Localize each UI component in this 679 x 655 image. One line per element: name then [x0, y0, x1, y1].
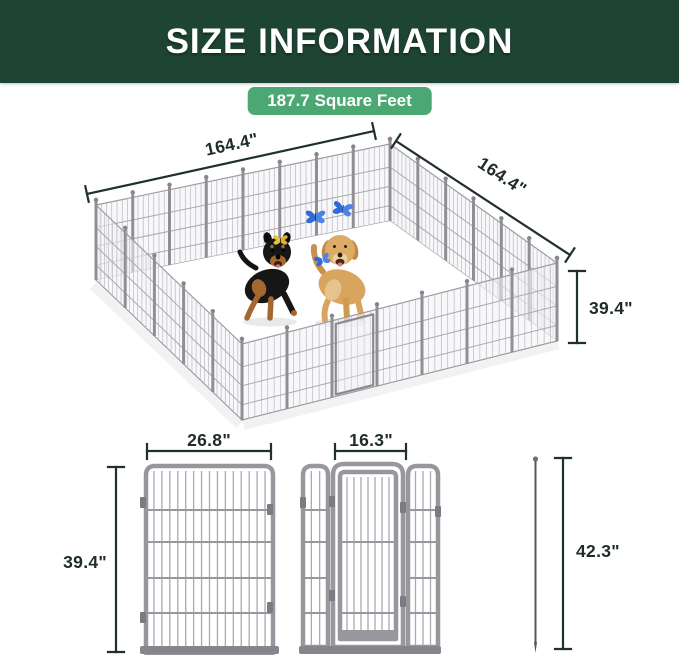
panel-height-label: 39.4" — [63, 552, 107, 572]
stake-ball-top — [533, 456, 538, 461]
panel-connector-tab — [329, 496, 335, 507]
pen-top-width-label: 164.4" — [203, 129, 260, 160]
panel-diagrams — [140, 464, 441, 654]
pen-height-label: 39.4" — [589, 298, 633, 318]
pen-side-width-label: 164.4" — [474, 153, 530, 199]
panel-connector-tab — [400, 502, 406, 513]
size-information-graphic: 164.4" 164.4" 39.4" 26.8" — [0, 0, 679, 655]
panel-connector-tab — [267, 504, 273, 515]
ground-stake — [533, 456, 538, 653]
panel-width-label: 26.8" — [187, 430, 231, 450]
panel-connector-tab — [140, 612, 146, 623]
panel-foot-bar — [140, 646, 279, 654]
door-width-label: 16.3" — [349, 430, 393, 450]
door-foot-bar — [299, 646, 441, 654]
panel-connector-tab — [435, 506, 441, 517]
panel-connector-tab — [267, 602, 273, 613]
page-title: SIZE INFORMATION — [166, 22, 514, 62]
pen-door-panel — [336, 314, 373, 394]
panel-connector-tab — [400, 596, 406, 607]
door-bottom-rail — [340, 630, 396, 639]
area-badge: 187.7 Square Feet — [247, 87, 432, 115]
header-banner: SIZE INFORMATION — [0, 0, 679, 83]
panel-connector-tab — [300, 497, 306, 508]
stake-tip — [534, 642, 537, 653]
panel-connector-tab — [140, 497, 146, 508]
panel-connector-tab — [329, 590, 335, 601]
stake-height-label: 42.3" — [576, 541, 620, 561]
